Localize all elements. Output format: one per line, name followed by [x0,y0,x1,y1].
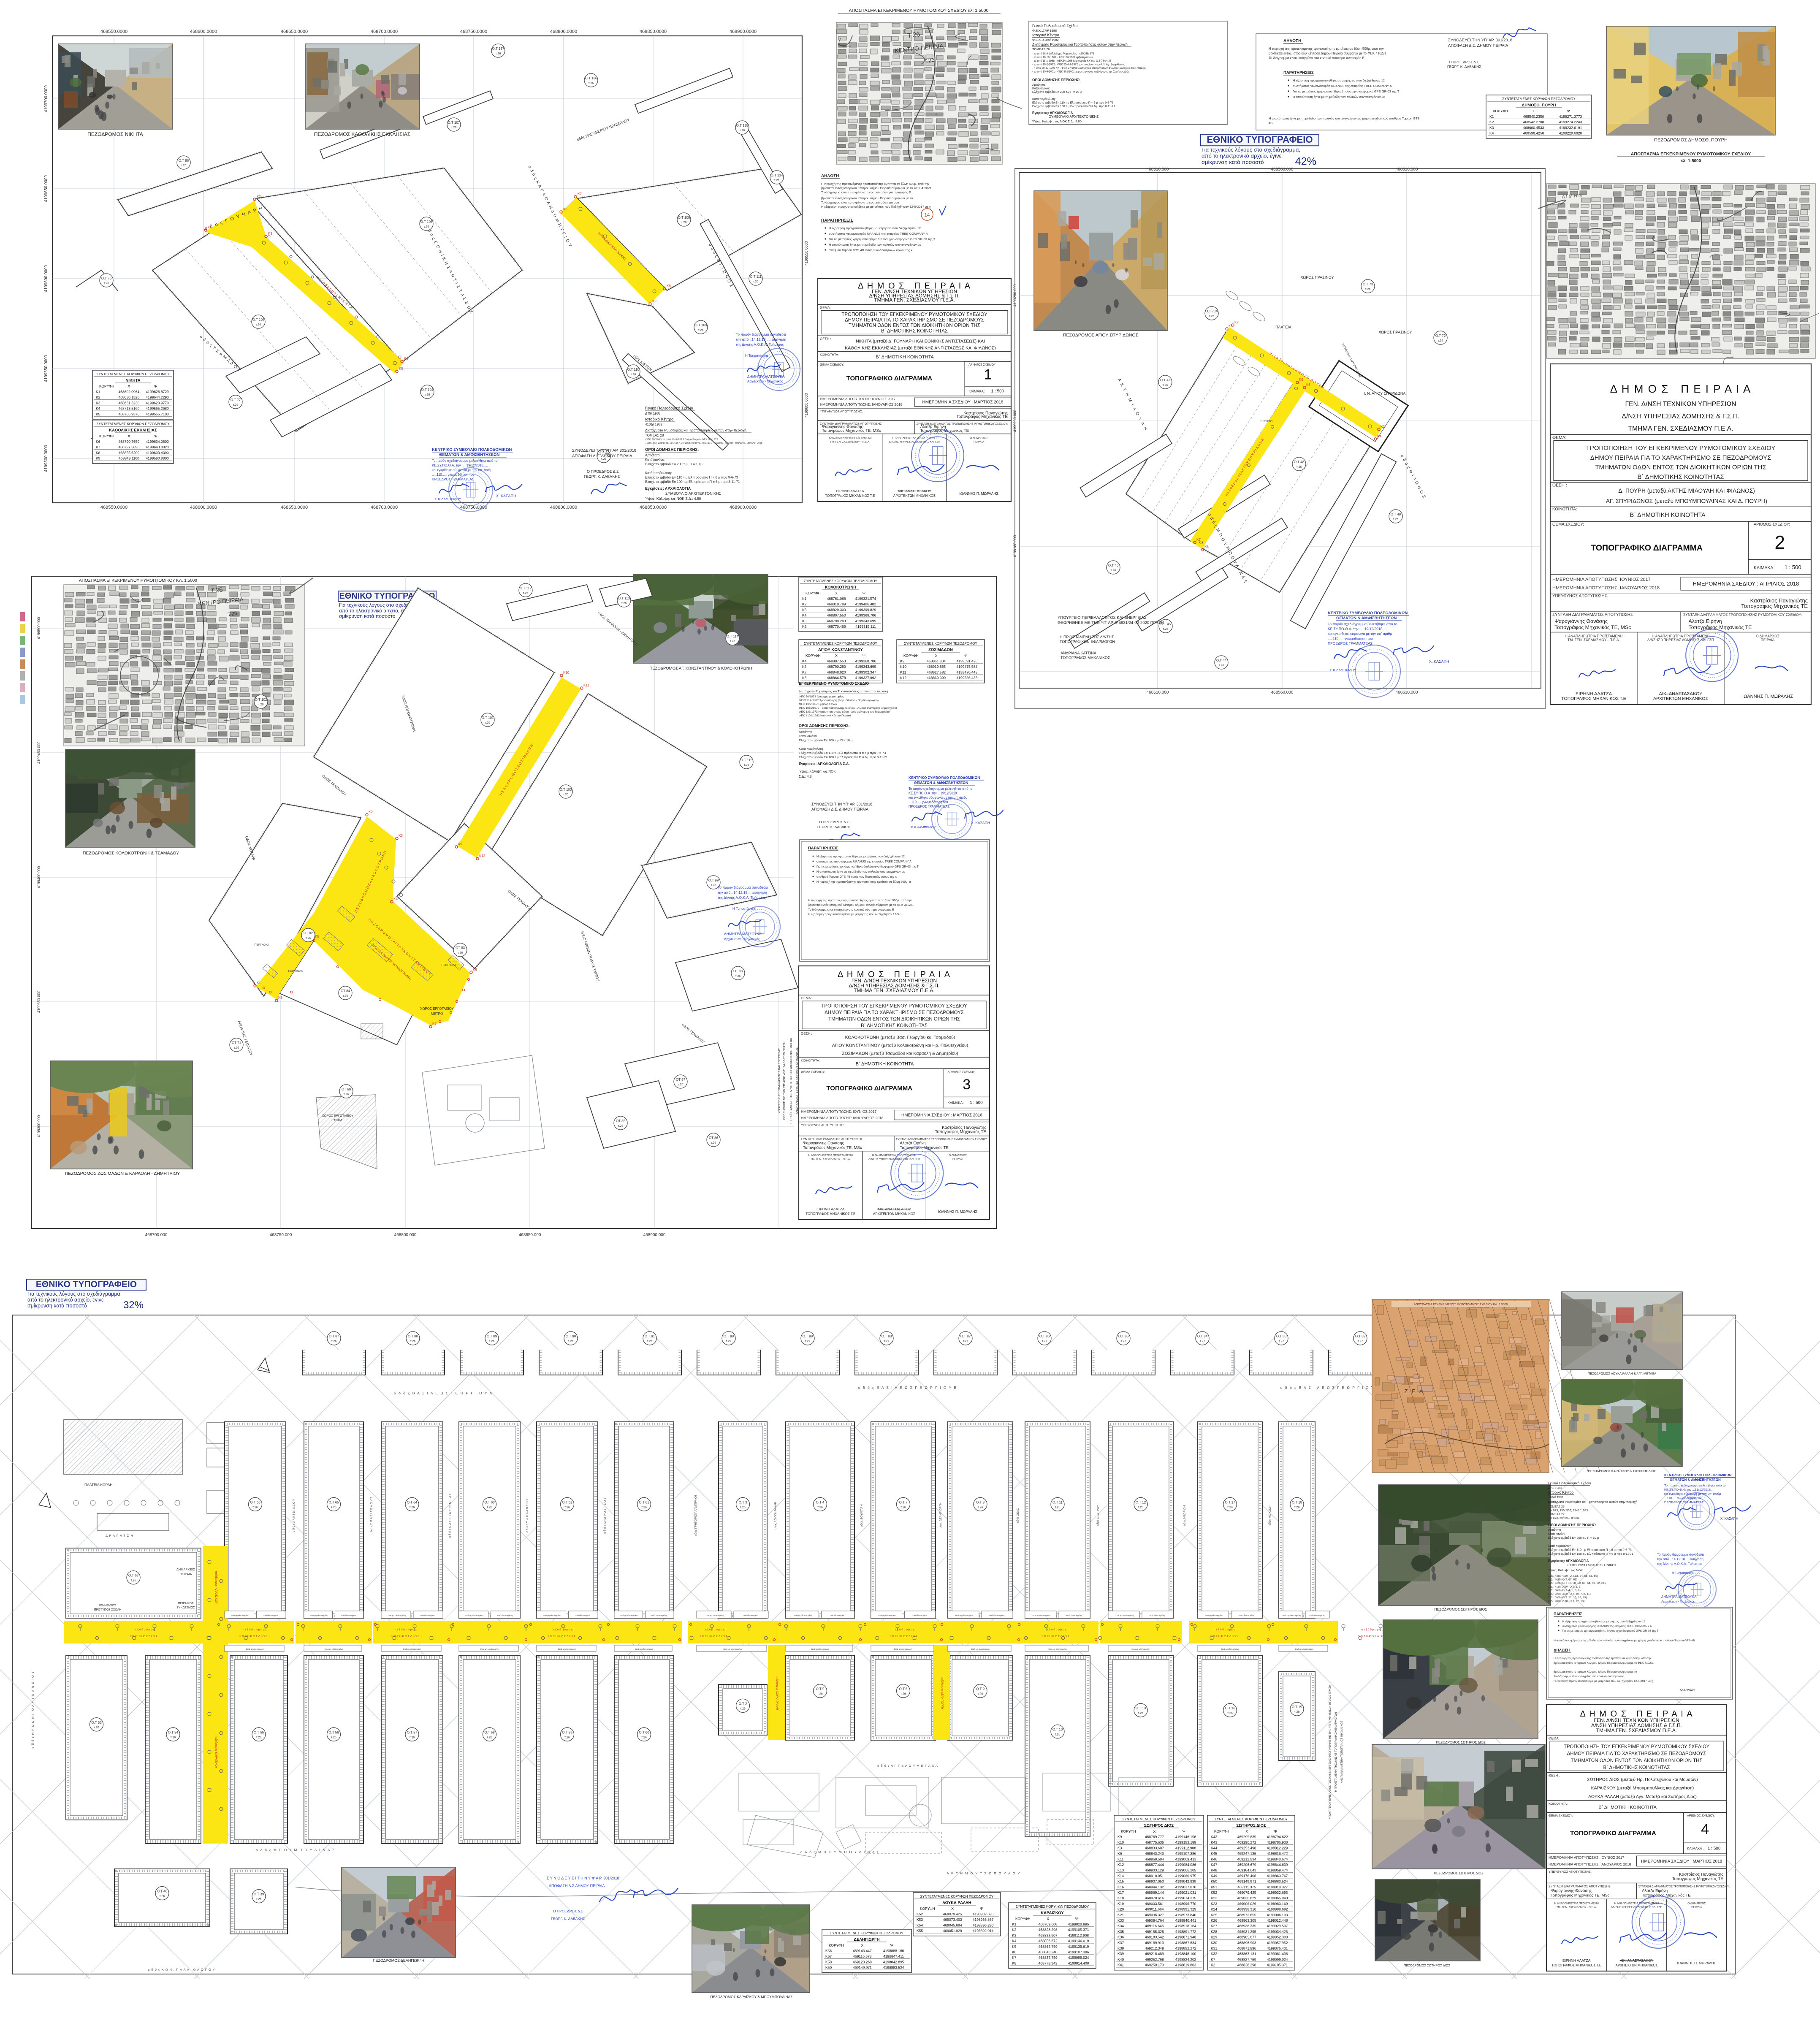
svg-text:Τοπογράφος Μηχανικός ΤΕ: Τοπογράφος Μηχανικός ΤΕ [957,414,1008,419]
svg-text:Το παρόν σχεδιάγραμμα μελετήθη: Το παρόν σχεδιάγραμμα μελετήθηκε από το [1328,622,1397,626]
svg-text:ΚΟΡΥΦΗ: ΚΟΡΥΦΗ [1015,1917,1031,1921]
svg-text:Κ20: Κ20 [1117,1907,1124,1912]
svg-text:Κ5: Κ5 [96,412,100,416]
svg-text:ΤΟΠΟΓΡΑΦΙΚΟ ΔΙΑΓΡΑΜΜΑ: ΤΟΠΟΓΡΑΦΙΚΟ ΔΙΑΓΡΑΜΜΑ [826,1085,912,1092]
svg-text:τ.26: τ.26 [1365,288,1371,291]
svg-text:Αρτιότητα: Αρτιότητα [799,730,813,734]
svg-text:468600.4533: 468600.4533 [1523,125,1544,130]
svg-text:τ.26: τ.26 [563,793,569,796]
svg-text:Κ16: Κ16 [1117,1885,1124,1889]
svg-text:Ο.Τ 88: Ο.Τ 88 [408,1334,418,1338]
svg-text:Γενικό Πολεοδομικό Σχέδιο: Γενικό Πολεοδομικό Σχέδιο [1032,24,1078,28]
svg-text:ΘΕΜΑΤΩΝ & ΑΜΦΙΣΒΗΤΗΣΕΩΝ: ΘΕΜΑΤΩΝ & ΑΜΦΙΣΒΗΤΗΣΕΩΝ [439,453,500,457]
svg-text:σταθμού Topcon GTS 4B εντός τω: σταθμού Topcon GTS 4B εντός των διοικητι… [829,248,912,252]
svg-text:469178.408: 469178.408 [1237,1874,1256,1878]
svg-text:469036.327: 469036.327 [1145,1913,1164,1917]
svg-text:Β΄ ΔΗΜΟΤΙΚΗ ΚΟΙΝΟΤΗΤΑ: Β΄ ΔΗΜΟΤΙΚΗ ΚΟΙΝΟΤΗΤΑ [1598,1805,1657,1810]
svg-text:469184.643: 469184.643 [1237,1868,1256,1872]
svg-text:Κ11: Κ11 [583,683,589,687]
svg-text:20/ 878, 60/ 893, 8/ 881: 20/ 878, 60/ 893, 8/ 881 [1548,1517,1579,1520]
svg-text:Κ13: Κ13 [1117,1868,1124,1872]
svg-text:Κατά παρέκκλιση: Κατά παρέκκλιση [1548,1544,1571,1548]
svg-text:Ο.Τ 82: Ο.Τ 82 [1355,1334,1366,1338]
svg-text:Τοπογράφος Μηχανικός ΤΕ, MSc: Τοπογράφος Μηχανικός ΤΕ, MSc [803,1145,862,1150]
svg-text:τ.26: τ.26 [1393,518,1399,521]
svg-text:Το παρόν σχεδιάγραμμα μελετήθη: Το παρόν σχεδιάγραμμα μελετήθηκε από το [909,787,973,791]
svg-text:Η περιοχή της προτεινόμενης τρ: Η περιοχή της προτεινόμενης τροποποίησης… [808,898,911,902]
svg-text:4198816.472: 4198816.472 [1267,1852,1288,1856]
svg-text:Στοά μη υλοποιημένη: Στοά μη υλοποιημένη [325,1648,343,1650]
svg-text:Κ1: Κ1 [1489,114,1494,119]
svg-text:Ο.Τ 62: Ο.Τ 62 [562,1500,572,1504]
svg-text:Ο.Τ 2: Ο.Τ 2 [739,1702,747,1706]
svg-text:Ο.Τ 104: Ο.Τ 104 [421,388,434,392]
svg-text:14: 14 [924,212,930,218]
svg-text:Κ10: Κ10 [563,671,570,675]
svg-text:Δ Ρ Α Γ Α Τ Σ Η: Δ Ρ Α Γ Α Τ Σ Η [106,1534,133,1538]
svg-text:Ο.Τ 102: Ο.Τ 102 [255,698,267,702]
svg-text:4199368.706: 4199368.706 [855,659,876,663]
svg-text:4199475.584: 4199475.584 [957,664,978,669]
svg-text:πεζόδρομος ΚΑΡΑΪΣΚΟΥ: πεζόδρομος ΚΑΡΑΪΣΚΟΥ [214,1736,218,1769]
svg-text:ο δ ό ς Β Α Σ Ι Λ Ε Ω Σ Γ: ο δ ό ς Β Α Σ Ι Λ Ε Ω Σ Γ Ε Ω Ρ Γ Ι Ο Υ … [858,1386,957,1390]
svg-text:4199600.0000: 4199600.0000 [804,393,808,418]
svg-text:ΘΕΣΗ :: ΘΕΣΗ : [801,1032,812,1036]
svg-text:Η εξάρτηση πραγματοποιήθηκε με: Η εξάρτηση πραγματοποιήθηκε με μετρήσεις… [821,205,931,209]
svg-text:τ.26: τ.26 [489,1340,495,1343]
svg-text:Στοά υλοποιημένη: Στοά υλοποιημένη [1149,1614,1165,1616]
svg-text:468972.655: 468972.655 [1237,1913,1256,1917]
svg-text:Ψαρογιάννης Θανάσης: Ψαρογιάννης Θανάσης [1554,618,1608,624]
svg-text:Ο.Τ 58: Ο.Τ 58 [484,1730,495,1734]
svg-text:τ.26: τ.26 [131,1579,136,1582]
svg-text:X: X [128,434,130,438]
svg-text:Κ18: Κ18 [1117,1896,1124,1900]
svg-text:τ.27: τ.27 [1121,1340,1126,1343]
svg-text:Η ΠΡΟΪΣΤΑΜΕΝΗ ΤΗΣ Δ/ΝΣΗΣ ΤΟΠΟ: Η ΠΡΟΪΣΤΑΜΕΝΗ ΤΗΣ Δ/ΝΣΗΣ ΤΟΠΟΓΡΑΦΙΚΩΝ ΕΦ… [1334,1712,1337,1792]
svg-text:Ο.Τ 106: Ο.Τ 106 [420,220,433,224]
svg-text:Κ30: Κ30 [1211,1941,1217,1945]
svg-text:469149.971: 469149.971 [853,1966,872,1970]
svg-text:469183.542: 469183.542 [1145,1935,1164,1939]
svg-text:τ.26: τ.26 [331,1340,337,1343]
svg-text:ΓΕΝ. Δ/ΝΣΗ ΤΕΧΝΙΚΩΝ ΥΠΗΡΕΣΙΩΝ: ΓΕΝ. Δ/ΝΣΗ ΤΕΧΝΙΚΩΝ ΥΠΗΡΕΣΙΩΝ [1625,401,1736,408]
svg-text:469206.679: 469206.679 [1237,1863,1256,1867]
svg-text:ΑΡΙΘΜΟΣ ΣΧΕΔΙΟΥ:: ΑΡΙΘΜΟΣ ΣΧΕΔΙΟΥ: [1754,522,1790,526]
svg-text:Ο.Τ 88: Ο.Τ 88 [882,1334,892,1338]
svg-text:βρίσκεται εντός Ιστορικού Κέντ: βρίσκεται εντός Ιστορικού Κέντρου Δήμου … [1554,1661,1654,1665]
svg-text:468837.759: 468837.759 [1039,1955,1058,1960]
svg-text:Ι. Ν. ΑΓΙΟΥ ΣΠΥΡΙΔΩΝΑ: Ι. Ν. ΑΓΙΟΥ ΣΠΥΡΙΔΩΝΑ [1364,391,1406,396]
svg-text:ΤΟΠΟΓΡΑΦΟΣ ΜΗΧΑΝΙΚΟΣ Τ.Ε: ΤΟΠΟΓΡΑΦΟΣ ΜΗΧΑΝΙΚΟΣ Τ.Ε [1561,697,1626,701]
svg-text:ΗΜΕΡΟΜΗΝΙΑ ΑΠΟΤΥΠΩΣΗΣ: ΙΟΥΝΙ: ΗΜΕΡΟΜΗΝΙΑ ΑΠΟΤΥΠΩΣΗΣ: ΙΟΥΝΙΟΣ 2017 [820,397,895,401]
svg-text:Ο.Τ 90: Ο.Τ 90 [566,1334,576,1338]
svg-text:τ.26: τ.26 [1138,1506,1144,1509]
svg-text:Σ.Δ.: 4,80/ 4,20 (Ο.Τ.53, 5: Σ.Δ.: 4,80/ 4,20 (Ο.Τ.53, 54, 55, 56, 65… [1548,1575,1598,1578]
svg-text:Ο.Τ 3: Ο.Τ 3 [739,1500,747,1504]
svg-text:ΑΡΙΘΜΟΣ ΣΧΕΔΙΟΥ:: ΑΡΙΘΜΟΣ ΣΧΕΔΙΟΥ: [1687,1814,1715,1817]
svg-text:ΧΩΡΟΣ ΠΡΑΣΙΝΟΥ: ΧΩΡΟΣ ΠΡΑΣΙΝΟΥ [1301,275,1334,279]
svg-text:τ.26: τ.26 [458,952,463,955]
svg-text:469149.971: 469149.971 [1237,1879,1256,1884]
svg-text:Κ15: Κ15 [1117,1879,1124,1884]
svg-text:τ.26: τ.26 [568,1340,574,1343]
svg-text:ΚΛΙΜΑΚΑ :: ΚΛΙΜΑΚΑ : [948,1101,965,1105]
svg-text:ο δ ό ς Π Ρ Α Ξ Ι Τ Ε Λ Ο Υ: ο δ ό ς Π Ρ Α Ξ Ι Τ Ε Λ Ο Υ Σ [370,1497,373,1535]
svg-text:Κ10: Κ10 [1117,1840,1124,1844]
svg-text:468631.3230: 468631.3230 [119,401,140,405]
svg-text:ΖΩΣΙΜΑΔΩΝ: ΖΩΣΙΜΑΔΩΝ [928,648,953,652]
svg-text:ΕΘΝΙΚΟ ΤΥΠΟΓΡΑΦΕΙΟ: ΕΘΝΙΚΟ ΤΥΠΟΓΡΑΦΕΙΟ [1207,134,1313,145]
svg-text:Στοά υλοποιημένη: Στοά υλοποιημένη [497,1614,513,1616]
svg-text:4199006.103: 4199006.103 [1267,1913,1288,1917]
svg-text:469116.578: 469116.578 [853,1954,872,1958]
svg-text:Αρχιτέκτων - Μηχανικός: Αρχιτέκτων - Μηχανικός [747,380,783,383]
svg-text:τ.26: τ.26 [1111,569,1116,572]
svg-text:468602.0964: 468602.0964 [119,390,140,394]
svg-text:ΣΩΤΗΡΟΣ ΔΙΟΣ: ΣΩΤΗΡΟΣ ΔΙΟΣ [1236,1823,1266,1828]
svg-text:Ο.Τ 48: Ο.Τ 48 [1294,460,1305,464]
svg-text:Κατά παρέκκλιση: Κατά παρέκκλιση [799,747,823,751]
svg-text:π ε ζ ό δ ρ ο μ ο ς: π ε ζ ό δ ρ ο μ ο ς [892,1628,914,1631]
svg-text:Σ Ω Τ Η Ρ Ο Σ Δ Ι Ο Σ: Σ Ω Τ Η Ρ Ο Σ Δ Ι Ο Σ [391,1635,419,1638]
svg-text:Κατά παρέκκλιση:: Κατά παρέκκλιση: [1032,98,1055,101]
svg-text:468598.4250: 468598.4250 [1523,131,1544,136]
svg-text:ΠΕΖΟΔΡΟΜΟΣ ΚΑΡΑΪΣΚΟΥ & ΣΩΤΗΡΟΣ: ΠΕΖΟΔΡΟΜΟΣ ΚΑΡΑΪΣΚΟΥ & ΣΩΤΗΡΟΣ ΔΙΟΣ [1588,1469,1656,1473]
svg-text:και εγκρίθηκε σύμφωνα με την: και εγκρίθηκε σύμφωνα με την υπ' άριθμ [1664,1492,1721,1496]
svg-text:τ.26: τ.26 [711,884,716,887]
svg-text:468713.5160: 468713.5160 [119,407,140,411]
svg-text:, 129/1863, 233/1941, 136/1967: , 129/1863, 233/1941, 136/1967, 25/1968,… [645,442,762,445]
svg-text:Στοά υλοποιημένη: Στοά υλοποιημένη [1238,1614,1254,1616]
svg-text:οδός ΝΕΩΡΙΩΝ: οδός ΝΕΩΡΙΩΝ [1183,1505,1186,1526]
svg-text:ΠΕΙΡΑΙΑ: ΠΕΙΡΑΙΑ [952,1158,963,1161]
svg-text:Η εξάρτηση πραγματοποιήθηκε με: Η εξάρτηση πραγματοποιήθηκε με μετρήσεις… [1554,1679,1653,1683]
svg-text:4198936.867: 4198936.867 [973,1917,994,1922]
svg-text:Κ1: Κ1 [96,390,100,394]
svg-text:ΠΡΟΕΔΡΟΣ ΓΡΑΜΜΑΤΕΑΣ: ΠΡΟΕΔΡΟΣ ΓΡΑΜΜΑΤΕΑΣ [1328,641,1372,645]
svg-text:4199565.2680: 4199565.2680 [146,407,169,411]
svg-text:4199060.975: 4199060.975 [1175,1874,1196,1878]
svg-text:ΚΟΙΝΟΤΗΤΑ:: ΚΟΙΝΟΤΗΤΑ: [801,1058,820,1062]
svg-text:Αλατζά Ειρήνη: Αλατζά Ειρήνη [1642,1888,1668,1893]
svg-text:Κ6: Κ6 [96,439,100,444]
svg-text:Στοά μη υλοποιημένη: Στοά μη υλοποιημένη [878,1614,897,1616]
svg-text:ΑΓ. ΣΠΥΡΙΔΩΝΟΣ (μεταξύ ΜΠΟΥΜΠΟ: ΑΓ. ΣΠΥΡΙΔΩΝΟΣ (μεταξύ ΜΠΟΥΜΠΟΥΛΙΝΑΣ ΚΑΙ… [1606,498,1767,504]
svg-text:Ιστορικό Κέντρο: Ιστορικό Κέντρο [1548,1490,1573,1494]
svg-text:τ.26: τ.26 [252,1506,258,1509]
svg-text:Κ53: Κ53 [917,1917,923,1922]
svg-text:π ε ζ ό δ ρ ο μ ο ς: π ε ζ ό δ ρ ο μ ο ς [1044,1628,1066,1631]
svg-text:Κ43: Κ43 [1211,1840,1217,1844]
svg-text:4199066.205: 4199066.205 [1175,1868,1196,1872]
svg-text:Δ. ΠΟΥΡΗ (μεταξύ ΑΚΤΗΣ ΜΙΑΟΥΛΗ: Δ. ΠΟΥΡΗ (μεταξύ ΑΚΤΗΣ ΜΙΑΟΥΛΗ ΚΑΙ ΦΙΛΩΝ… [1618,488,1755,494]
svg-text:Κ5: Κ5 [399,367,403,371]
svg-text:4199626.8729: 4199626.8729 [146,390,169,394]
svg-text:τ.26: τ.26 [496,52,501,55]
svg-text:Η αποτύπωση έγινε με τη μέθοδο: Η αποτύπωση έγινε με τη μέθοδο των πολικ… [829,243,921,247]
svg-text:Κ12: Κ12 [1117,1863,1124,1867]
svg-text:4199146.019: 4199146.019 [1068,1939,1089,1943]
svg-text:ο δ ό ς Η Ρ Ω Ω Ν Π Ο Λ Υ: ο δ ό ς Η Ρ Ω Ω Ν Π Ο Λ Υ Τ Ε Χ Ν Ε Ι Ο … [31,1671,35,1748]
svg-text:ΔΗΛΩΣΗ: ΔΗΛΩΣΗ [1283,39,1301,43]
svg-text:Στοά μη υλοποιημένη: Στοά μη υλοποιημένη [620,1614,639,1616]
svg-text:τ.26: τ.26 [171,1736,176,1739]
svg-text:ΙΩΑΝΝΗΣ Π. ΜΩΡΑΛΗΣ: ΙΩΑΝΝΗΣ Π. ΜΩΡΑΛΗΣ [1677,1961,1717,1965]
svg-text:ΗΜΕΡΟΜΗΝΙΑ ΣΧΕΔΙΟΥ : ΑΠΡΙ: ΗΜΕΡΟΜΗΝΙΑ ΣΧΕΔΙΟΥ : ΑΠΡΙΛΙΟΣ 2018 [1693,580,1799,587]
svg-text:ΣΥΝΤΑΞΗ ΔΙΑΓΡΑΜΜΑΤΟΣ ΤΡΟΠΟΠΟΙ: ΣΥΝΤΑΞΗ ΔΙΑΓΡΑΜΜΑΤΟΣ ΤΡΟΠΟΠΟΙΗΣΗΣ ΡΥΜΟΤΟ… [1638,1885,1730,1888]
svg-text:Ο.Τ 108: Ο.Τ 108 [678,216,690,220]
svg-text:Κ5: Κ5 [802,664,807,669]
svg-text:468900.0000: 468900.0000 [730,505,757,510]
svg-text:Σ.Δ.: 3,60 (Ο.Τ. 4, 5, 6, 9: Σ.Δ.: 3,60 (Ο.Τ. 4, 5, 6, 9) [1548,1589,1581,1592]
svg-text:Ο.Τ 105: Ο.Τ 105 [252,318,265,322]
svg-text:Στοά υλοποιημένη: Στοά υλοποιημένη [341,1614,356,1616]
svg-text:Κ3: Κ3 [1012,1933,1017,1937]
svg-text:Χ. ΚΑΣΑΠΗ: Χ. ΚΑΣΑΠΗ [1429,659,1449,664]
svg-text:Ο.Τ 9: Ο.Τ 9 [976,1687,985,1691]
svg-text:56/ 873, 136/ 967, 294Δ/ 1983: 56/ 873, 136/ 967, 294Δ/ 1983 [1548,1509,1588,1512]
svg-text:Ο.Τ 99: Ο.Τ 99 [708,879,719,882]
svg-text:Ο.Τ 17: Ο.Τ 17 [1225,1500,1235,1504]
svg-text:Ελάχιστο εμβαδό Ε= 100 τ.μ: Ελάχιστο εμβαδό Ε= 100 τ.μ Ελ πρόσωπο Π … [645,480,740,484]
svg-text:Ο.Τ 111: Ο.Τ 111 [750,275,762,279]
svg-text:πεζόδρομος ΔΕΛΗΓΙΩΡΓΗ: πεζόδρομος ΔΕΛΗΓΙΩΡΓΗ [941,1677,944,1709]
svg-text:ΤΜ. ΓΕΝ. ΣΧΕΔΙΑΣΜΟΥ - Π.Ε.Α.: ΤΜ. ΓΕΝ. ΣΧΕΔΙΑΣΜΟΥ - Π.Ε.Α. [811,1158,851,1161]
svg-text:Ο.Τ 54: Ο.Τ 54 [168,1730,179,1734]
svg-text:468843.240: 468843.240 [1039,1950,1058,1954]
svg-text:4199343.699: 4199343.699 [855,664,876,669]
svg-text:Για τις μετρήσεις χρησιμοποιήθ: Για τις μετρήσεις χρησιμοποιήθηκε διπλόσ… [816,865,919,868]
svg-text:ΘΕΜΑ:: ΘΕΜΑ: [801,996,812,1000]
svg-text:4199500.0000: 4199500.0000 [44,445,49,472]
svg-text:Το διάγραμμα είναι ενταγμένο σ: Το διάγραμμα είναι ενταγμένο στο κρατικό… [821,201,899,204]
svg-text:468510.000: 468510.000 [1147,690,1169,695]
svg-text:Κ7: Κ7 [432,1022,437,1026]
svg-text:Κ4: Κ4 [96,407,100,411]
svg-text:ΣΥΝΤΕΤΑΓΜΕΝΕΣ ΚΟΡΥΦΩΝ ΠΕΖΟΔΡ: ΣΥΝΤΕΤΑΓΜΕΝΕΣ ΚΟΡΥΦΩΝ ΠΕΖΟΔΡΟΜΟΥ [920,1895,994,1898]
svg-text:Ο.Τ 13: Ο.Τ 13 [1136,1706,1146,1710]
svg-text:Η περιοχή της προτεινόμενης τρ: Η περιοχή της προτεινόμενης τροποποίησης… [1554,1657,1652,1660]
svg-text:κλ: 1:5000: κλ: 1:5000 [1681,159,1701,163]
svg-text:468761.066: 468761.066 [827,597,846,601]
svg-text:Η εξάρτηση πραγματοποιήθηκε με: Η εξάρτηση πραγματοποιήθηκε με μετρήσεις… [816,854,905,858]
svg-text:468778.942: 468778.942 [1039,1961,1058,1965]
svg-text:ΤΟΜΕΑΣ 26: ΤΟΜΕΑΣ 26 [1548,1505,1565,1508]
svg-text:Αρχιτέκτων - Μηχανικός: Αρχιτέκτων - Μηχανικός [724,937,760,941]
svg-text:4199075.401: 4199075.401 [1267,1946,1288,1950]
svg-text:Κ19: Κ19 [1117,1901,1124,1906]
svg-text:τ.26: τ.26 [410,1340,416,1343]
svg-text:468700.000: 468700.000 [145,1233,168,1237]
svg-text:βρίσκεται εντός Ιστορικού Κέντ: βρίσκεται εντός Ιστορικού Κέντρου Δήμου … [1554,1670,1637,1673]
svg-text:4198896.280: 4198896.280 [973,1923,994,1927]
svg-text:ΟΤ 84: ΟΤ 84 [341,989,350,993]
svg-text:Η Τμηματάρχης: Η Τμηματάρχης [745,354,768,358]
svg-text:468700.0000: 468700.0000 [371,505,398,510]
svg-text:468903.129: 468903.129 [1145,1868,1164,1872]
svg-text:469295.835: 469295.835 [1237,1835,1256,1839]
svg-text:4198848.100: 4198848.100 [1175,1952,1196,1956]
svg-text:4199081.438: 4199081.438 [1267,1952,1288,1956]
svg-text:τ.26: τ.26 [523,592,529,595]
svg-text:469006.026: 469006.026 [1237,1901,1256,1906]
svg-text:ΥΠΕΥΘΥΝΟΣ ΑΠΟΤΥΠΩΣΗΣ:: ΥΠΕΥΘΥΝΟΣ ΑΠΟΤΥΠΩΣΗΣ: [820,409,863,413]
svg-text:Στοά μη υλοποιημένη: Στοά μη υλοποιημένη [1032,1614,1051,1616]
svg-text:4199229.6820: 4199229.6820 [1559,131,1582,136]
svg-text:τ.27: τ.27 [726,1340,732,1343]
svg-text:ο δ ό ς Κ Ω Ν . Π Α Λ Α Ι Ο: ο δ ό ς Κ Ω Ν . Π Α Λ Α Ι Ο Λ Ο Γ Ο Υ [148,1968,215,1971]
svg-text:Διατάγματα Ρυμοτομίας και Τροπ: Διατάγματα Ρυμοτομίας και Τροποποιήσεις … [799,689,888,693]
svg-text:ΤΟΜΕΑΣ 28: ΤΟΜΕΑΣ 28 [645,434,664,437]
svg-text:τ.27: τ.27 [1200,1340,1205,1343]
svg-text:ΘΕΜΑ:: ΘΕΜΑ: [1549,1736,1560,1740]
svg-text:Κ7: Κ7 [802,670,807,674]
svg-text:Στοά μη υλοποιημένη: Στοά μη υλοποιημένη [635,1648,654,1650]
svg-text:ΑΠΟΣΠΑΣΜΑ ΕΓΚΕΚΡΙΜΕΝΟΥ ΡΥΜΟΠΤΟ: ΑΠΟΣΠΑΣΜΑ ΕΓΚΕΚΡΙΜΕΝΟΥ ΡΥΜΟΠΤΟΜΙΚΟΥ ΚΛ. … [79,578,197,583]
svg-text:ΔΕΛΗΓΙΩΡΓΗ: ΔΕΛΗΓΙΩΡΓΗ [854,1937,879,1942]
svg-text:τ.26: τ.26 [978,1692,983,1695]
svg-text:ΔΗΛΩΣΗ: ΔΗΛΩΣΗ [821,174,839,179]
svg-text:469252.768: 469252.768 [1145,1957,1164,1961]
svg-text:ΟΤ 86: ΟΤ 86 [709,1136,719,1140]
svg-text:Σ.Δ.: 3,60/ 3,00 (Ο.Τ. 10,: Σ.Δ.: 3,60/ 3,00 (Ο.Τ. 10, 7, 8, 11) [1548,1593,1591,1596]
svg-text:468869.090: 468869.090 [927,676,946,680]
svg-text:Στοά μη υλοποιημένη: Στοά μη υλοποιημένη [1205,1614,1223,1616]
svg-text:Ο.Τ 86: Ο.Τ 86 [1039,1334,1050,1338]
svg-text:ΑΡΙΘΜΟΣ ΣΧΕΔΙΟΥ:: ΑΡΙΘΜΟΣ ΣΧΕΔΙΟΥ: [948,1071,976,1074]
svg-text:ΚΕ.ΣΥ.ΠΟ.Θ.Α. την .....19/12/2: ΚΕ.ΣΥ.ΠΟ.Θ.Α. την .....19/12/2018..... [1328,627,1387,631]
svg-text:468896.903: 468896.903 [1237,1941,1256,1945]
svg-text:4198859.474: 4198859.474 [1267,1868,1288,1872]
svg-text:Κ25: Κ25 [1211,1913,1217,1917]
svg-text:Διατάγματα Ρυμοτομίας και Τροπ: Διατάγματα Ρυμοτομίας και Τροποποιήσεις … [1548,1500,1638,1504]
svg-text:4198847.411: 4198847.411 [883,1954,904,1958]
svg-text:Ο.Τ 16: Ο.Τ 16 [1225,1706,1235,1710]
svg-text:Στοά μη υλοποιημένη: Στοά μη υλοποιημένη [1282,1614,1301,1616]
svg-text:ΚΑΡΑΪΣΚΟΥ (μεταξύ Μπουμπουλίνα: ΚΑΡΑΪΣΚΟΥ (μεταξύ Μπουμπουλίνας και Δραγ… [1591,1786,1694,1791]
svg-text:Β΄ ΔΗΜΟΤΙΚΗΣ ΚΟΙΝΟΤΗΤΑΣ: Β΄ ΔΗΜΟΤΙΚΗΣ ΚΟΙΝΟΤΗΤΑΣ [1637,473,1724,480]
svg-text:Ο.Τ 73Α: Ο.Τ 73Α [1205,309,1218,313]
svg-text:468849.1160: 468849.1160 [119,456,139,461]
svg-text:4198983.169: 4198983.169 [1267,1901,1288,1906]
svg-text:ΕΙΡΗΝΗ ΑΛΑΤΖΑ: ΕΙΡΗΝΗ ΑΛΑΤΖΑ [1562,1958,1591,1963]
svg-text:Ψ: Ψ [863,654,865,658]
svg-text:Κ38: Κ38 [1117,1946,1124,1950]
svg-text:ΥΠΟΥΡΓΕΙΟ ΠΕΡΙΒΑΛΛΟΝΤΟΣ ΚΑΙ ΕΝ: ΥΠΟΥΡΓΕΙΟ ΠΕΡΙΒΑΛΛΟΝΤΟΣ ΚΑΙ ΕΝΕΡΓΕΙΑΣ [1058,616,1147,620]
svg-text:ΚΟΡΥΦΗ: ΚΟΡΥΦΗ [903,654,919,658]
svg-text:τ.26: τ.26 [1227,1712,1233,1715]
svg-text:ΛΟΥΚΑ ΡΑΛΛΗ: ΛΟΥΚΑ ΡΑΛΛΗ [943,1901,971,1905]
svg-text:468998.310: 468998.310 [1237,1907,1256,1912]
svg-text:Κ55: Κ55 [917,1929,923,1933]
svg-text:ΟΤ 97: ΟΤ 97 [676,1078,686,1082]
svg-text:ΤΜ. ΓΕΝ. ΣΧΕΔΙΑΣΜΟΥ - Π.Ε.Α.: ΤΜ. ΓΕΝ. ΣΧΕΔΙΑΣΜΟΥ - Π.Ε.Α. [1556,1906,1597,1909]
svg-text:4199300.000: 4199300.000 [37,1115,41,1138]
svg-text:ΙΩΑΝΝΗΣ Π. ΜΩΡΑΛΗΣ: ΙΩΑΝΝΗΣ Π. ΜΩΡΑΛΗΣ [938,1209,977,1214]
svg-text:π ε ζ ό δ ρ ο μ ο ς: π ε ζ ό δ ρ ο μ ο ς [1361,1628,1383,1631]
svg-text:ΘΕΜΑ:: ΘΕΜΑ: [1552,435,1567,440]
svg-text:ΗΜΕΡΟΜΗΝΙΑ ΣΧΕΔΙΟΥ : ΜΑΡΤ: ΗΜΕΡΟΜΗΝΙΑ ΣΧΕΔΙΟΥ : ΜΑΡΤΙΟΣ 2018 [1641,1859,1722,1864]
svg-text:- το από 11-1-1968 - ΦΕΚ34/196: - το από 11-1-1968 - ΦΕΚ34/1968 Δημιουργ… [1032,59,1112,62]
svg-text:4199105.371: 4199105.371 [1267,1963,1288,1967]
svg-text:Κ52: Κ52 [917,1912,923,1916]
svg-text:Ψ: Ψ [154,434,157,438]
svg-text:ΤΟΠΟΓΡΑΦΟΣ ΜΗΧΑΝΙΚΟΣ Τ.Ε: ΤΟΠΟΓΡΑΦΟΣ ΜΗΧΑΝΙΚΟΣ Τ.Ε [1551,1963,1601,1967]
svg-text:ΖΩΣΙΜΑΔΩΝ (μεταξύ Τσαμαδού και: ΖΩΣΙΜΑΔΩΝ (μεταξύ Τσαμαδού και Καραολή &… [842,1051,958,1056]
svg-text:Το διάγραμμα είναι ενταγμένο σ: Το διάγραμμα είναι ενταγμένο στο κρατικό… [1269,56,1364,60]
svg-text:ΠΡΟΕΔΡΟΣ ΓΡΑΜΜΑΤΕΑΣ: ΠΡΟΕΔΡΟΣ ΓΡΑΜΜΑΤΕΑΣ [1664,1500,1704,1504]
svg-text:4199271.3773: 4199271.3773 [1559,114,1582,119]
svg-text:4198786.930: 4198786.930 [1267,1840,1288,1844]
svg-text:Στοά υλοποιημένη: Στοά υλοποιημένη [743,1614,758,1616]
svg-text:ΑΡΙΘΜΟΣ ΣΧΕΔΙΟΥ:: ΑΡΙΘΜΟΣ ΣΧΕΔΙΟΥ: [968,363,996,366]
svg-text:Σ.Δ.: 4,80 (Ο.Τ. 67, 66): Σ.Δ.: 4,80 (Ο.Τ. 67, 66) [1548,1578,1577,1581]
svg-text:468837.759: 468837.759 [1237,1957,1256,1961]
svg-text:X: X [835,591,838,595]
svg-text:ΓΕΩΡΓ. Κ. ΔΑΒΑΚΗΣ: ΓΕΩΡΓ. Κ. ΔΑΒΑΚΗΣ [817,825,852,829]
svg-text:468843.240: 468843.240 [1145,1852,1164,1856]
svg-text:ΤΡΟΠΟΠΟΙΗΣΗ ΤΟΥ ΕΓΚΕΚΡΙΜΕΝΟΥ Ρ: ΤΡΟΠΟΠΟΙΗΣΗ ΤΟΥ ΕΓΚΕΚΡΙΜΕΝΟΥ ΡΥΜΟΤΟΜΙΚΟΥ… [1586,445,1776,452]
svg-text:Ύψος, Κάλυψη: ως ΝΟΚ: Ύψος, Κάλυψη: ως ΝΟΚ [799,770,836,773]
svg-text:4199470.445: 4199470.445 [957,670,978,674]
svg-text:συστήματος γεωαναφοράς URANUS: συστήματος γεωαναφοράς URANUS της εταιρε… [1293,84,1392,88]
svg-text:ΑΝΔΡΙΑΝΑ ΚΑΤΣΙΝΑ: ΑΝΔΡΙΑΝΑ ΚΑΤΣΙΝΑ [1061,651,1096,655]
svg-text:Στοά υλοποιημένη: Στοά υλοποιημένη [911,1614,927,1616]
svg-text:ΚΟΡΥΦΗ: ΚΟΡΥΦΗ [806,591,821,595]
svg-text:ΦΕΚ 56/1873 Διάταγμα ρυμοτομία: ΦΕΚ 56/1873 Διάταγμα ρυμοτομίας [799,695,844,698]
svg-text:Κ4: Κ4 [404,357,408,361]
svg-text:4199020.895: 4199020.895 [1068,1922,1089,1926]
svg-text:Ο ΔΗΜΑΡΧΟΣ: Ο ΔΗΜΑΡΧΟΣ [949,1154,967,1157]
svg-text:ΘΕΜΑ ΣΧΕΔΙΟΥ:: ΘΕΜΑ ΣΧΕΔΙΟΥ: [1549,1814,1573,1817]
svg-text:ΣΥΝΤΕΤΑΓΜΕΝΕΣ ΚΟΡΥΦΩΝ ΠΕΖΟΔΡ: ΣΥΝΤΕΤΑΓΜΕΝΕΣ ΚΟΡΥΦΩΝ ΠΕΖΟΔΡΟΜΟΥ [904,642,977,645]
svg-text:Το διάγραμμα είναι ενταγμένο σ: Το διάγραμμα είναι ενταγμένο στο κρατικό… [1554,1675,1624,1678]
svg-text:Ψαρογιάννης Θανάσης: Ψαρογιάννης Θανάσης [1551,1888,1592,1893]
svg-text:ΣΥΝΤΑΞΗ ΔΙΑΓΡΑΜΜΑΤΟΣ ΑΠΟΤΥΠΩΣΗ: ΣΥΝΤΑΞΗ ΔΙΑΓΡΑΜΜΑΤΟΣ ΑΠΟΤΥΠΩΣΗΣ [1552,613,1633,617]
svg-text:X: X [1245,1829,1248,1833]
svg-text:469212.534: 469212.534 [1237,1857,1256,1861]
svg-text:τ.26: τ.26 [735,975,741,978]
svg-text:4198867.634: 4198867.634 [1175,1941,1196,1945]
svg-text:...110..... γνωμοδότηση του: ...110..... γνωμοδότηση του [909,800,948,804]
svg-text:Κ1: Κ1 [802,597,807,601]
svg-text:469030.829: 469030.829 [1237,1896,1256,1900]
svg-text:1: 1 [984,367,992,383]
svg-text:ΘΕΜΑ:: ΘΕΜΑ: [820,306,831,309]
svg-text:469253.498: 469253.498 [1237,1846,1256,1850]
svg-text:τ.26: τ.26 [774,179,780,182]
svg-text:4198892.014: 4198892.014 [973,1929,994,1933]
svg-text:Φ.Ε.Κ. Δ79/ 1988: Φ.Ε.Κ. Δ79/ 1988 [1032,29,1057,33]
svg-text:Στοά μη υλοποιημένη: Στοά μη υλοποιημένη [403,1648,421,1650]
svg-text:Κ4: Κ4 [1377,434,1381,438]
svg-text:Η ΑΝΑΠΛΗΡΩΤΡΙΑ ΠΡΟΪΣΤΑΜΕΝΗ: Η ΑΝΑΠΛΗΡΩΤΡΙΑ ΠΡΟΪΣΤΑΜΕΝΗ [808,1154,853,1157]
svg-text:Κ49: Κ49 [1211,1874,1217,1878]
svg-text:4199034.425: 4199034.425 [1267,1929,1288,1934]
svg-text:4199057.952: 4199057.952 [1267,1941,1288,1945]
svg-text:π ε ζ ό δ ρ ο μ ο ς: π ε ζ ό δ ρ ο μ ο ς [242,1628,264,1631]
svg-text:ΚΑΘΟΛΙΚΗΣ ΕΚΚΛΗΣΙΑΣ: ΚΑΘΟΛΙΚΗΣ ΕΚΚΛΗΣΙΑΣ [109,428,157,433]
svg-text:ΑΠΟΦΑΣΗ Δ.Σ. ΔΗΜΟΥ ΠΕΙΡΑΙΑ: ΑΠΟΦΑΣΗ Δ.Σ. ΔΗΜΟΥ ΠΕΙΡΑΙΑ [572,454,632,458]
svg-text:Κ40: Κ40 [1117,1957,1124,1961]
svg-text:Ο.Τ 87: Ο.Τ 87 [960,1334,971,1338]
svg-text:Κ3: Κ3 [1117,1846,1122,1850]
svg-text:Κ7: Κ7 [96,445,100,449]
svg-text:Κ2: Κ2 [257,195,261,198]
svg-text:τ.26: τ.26 [160,1895,165,1898]
svg-text:4199700.0000: 4199700.0000 [44,85,49,112]
